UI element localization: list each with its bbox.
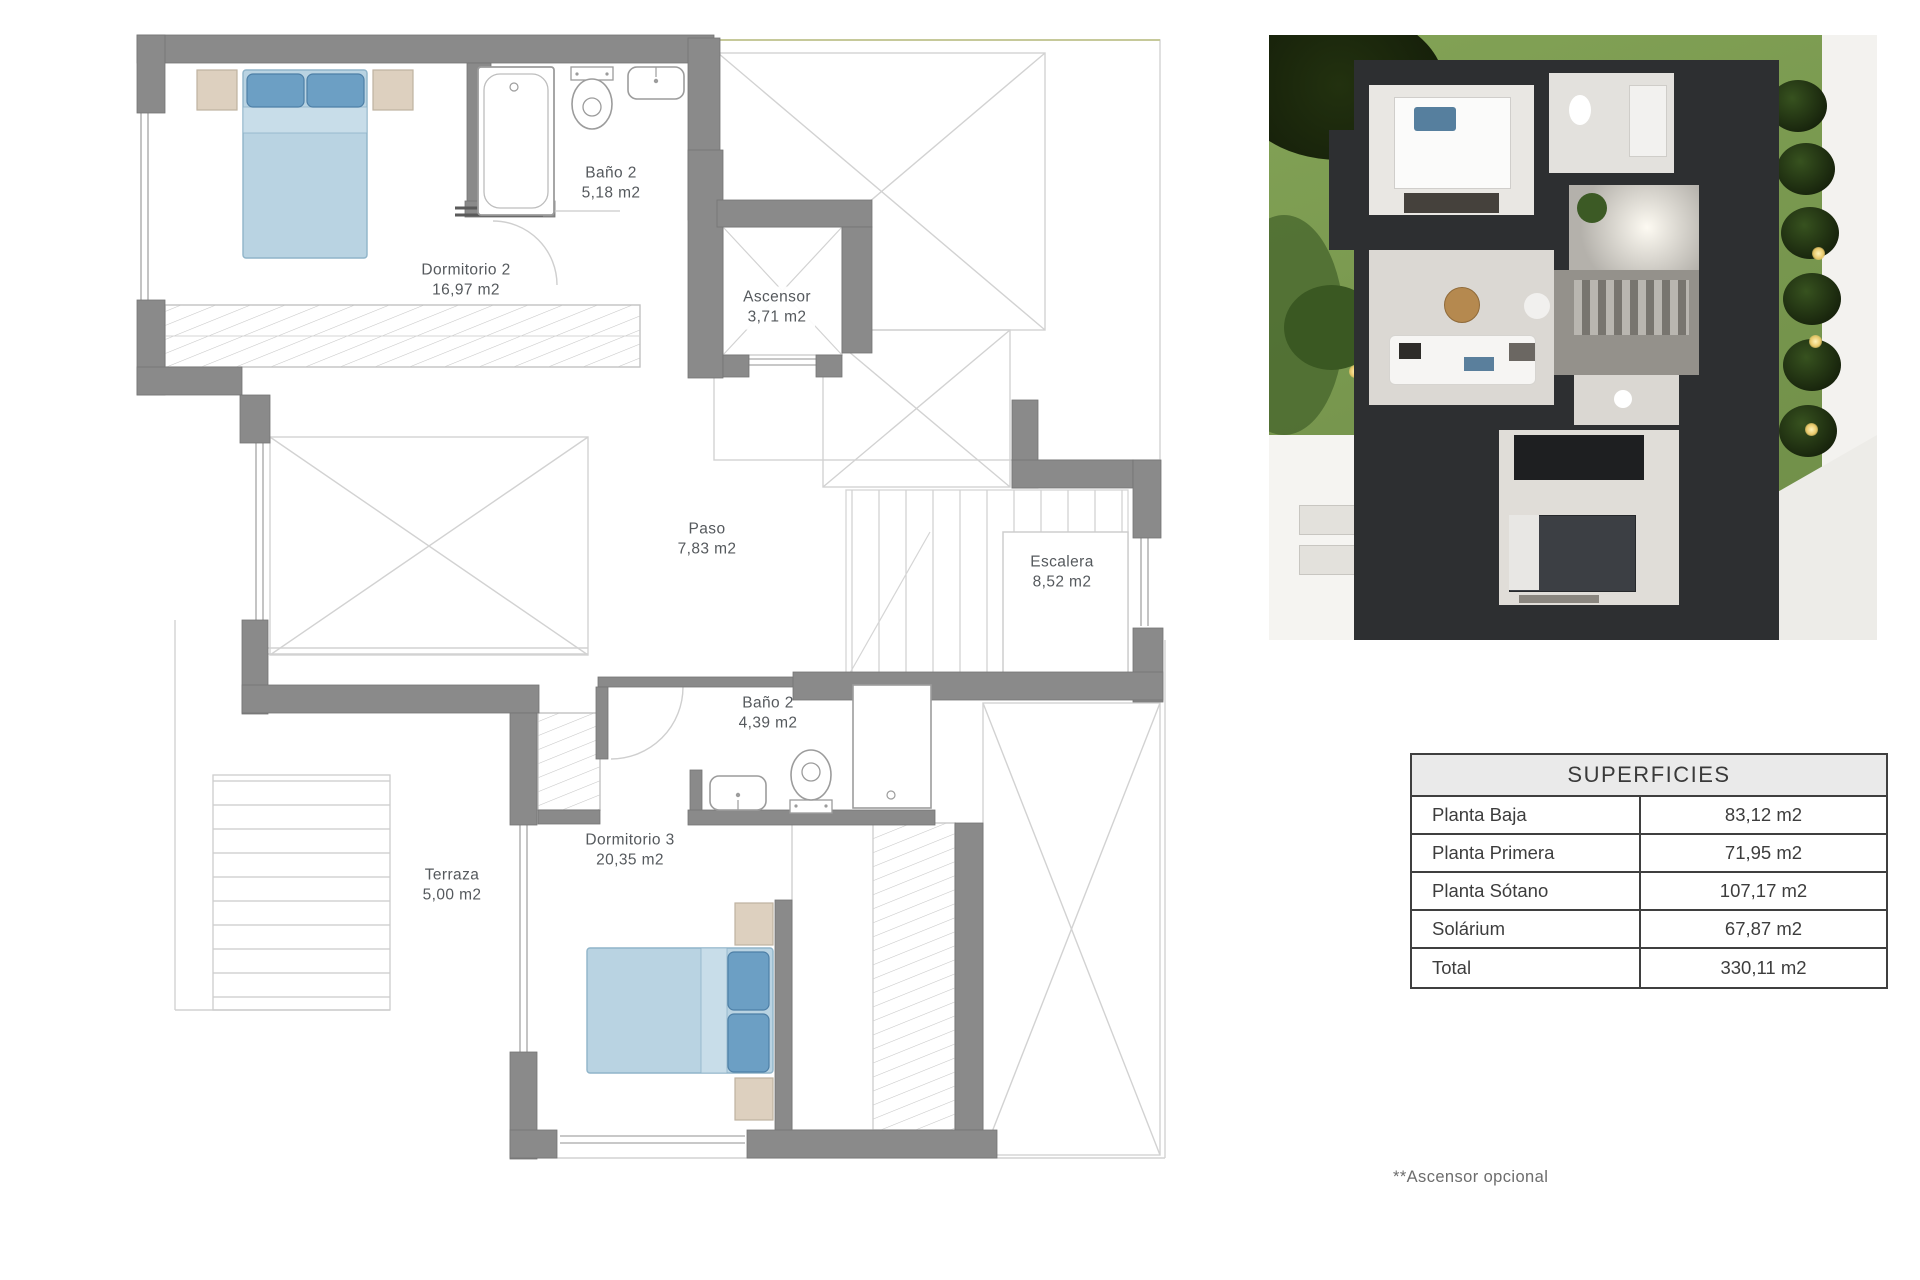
sink-icon-bath1 [628, 67, 684, 99]
render-3d-aerial [1269, 35, 1877, 640]
page: Dormitorio 2 16,97 m2 Baño 2 5,18 m2 Asc… [0, 0, 1920, 1280]
room-label-dormitorio-3: Dormitorio 3 20,35 m2 [585, 831, 674, 872]
table-row: Total 330,11 m2 [1412, 949, 1886, 987]
shower-icon [853, 685, 931, 808]
render-living-room [1369, 250, 1554, 405]
render-stair-hall [1554, 270, 1699, 375]
bed-dormitorio-2 [197, 70, 413, 258]
render-bathroom-2 [1574, 375, 1679, 425]
table-row: Planta Sótano 107,17 m2 [1412, 873, 1886, 911]
room-label-paso: Paso 7,83 m2 [678, 520, 737, 561]
toilet-icon-bath2 [790, 750, 832, 813]
render-bedroom-1 [1369, 85, 1534, 215]
render-hall [1569, 185, 1699, 270]
room-label-terraza: Terraza 5,00 m2 [423, 866, 482, 907]
room-label-ascensor: Ascensor 3,71 m2 [739, 287, 815, 330]
room-label-bano-2-upper: Baño 2 5,18 m2 [582, 164, 641, 205]
room-label-dormitorio-2: Dormitorio 2 16,97 m2 [421, 261, 510, 302]
surfaces-table: SUPERFICIES Planta Baja 83,12 m2 Planta … [1410, 753, 1888, 989]
sink-icon-bath2 [710, 776, 766, 810]
surfaces-table-title: SUPERFICIES [1412, 755, 1886, 797]
toilet-icon-bath1 [571, 67, 613, 129]
pergola-slats [213, 775, 390, 1010]
table-row: Planta Baja 83,12 m2 [1412, 797, 1886, 835]
footnote-ascensor-opcional: **Ascensor opcional [1393, 1168, 1548, 1187]
render-bathroom-1 [1549, 73, 1674, 173]
floor-plan-svg [110, 25, 1180, 1175]
table-row: Planta Primera 71,95 m2 [1412, 835, 1886, 873]
render-bedroom-2 [1499, 430, 1679, 605]
room-label-bano-2-lower: Baño 2 4,39 m2 [739, 694, 798, 735]
room-label-escalera: Escalera 8,52 m2 [1026, 552, 1098, 595]
table-row: Solárium 67,87 m2 [1412, 911, 1886, 949]
bathtub-icon [478, 67, 554, 215]
bed-dormitorio-3 [587, 903, 773, 1120]
